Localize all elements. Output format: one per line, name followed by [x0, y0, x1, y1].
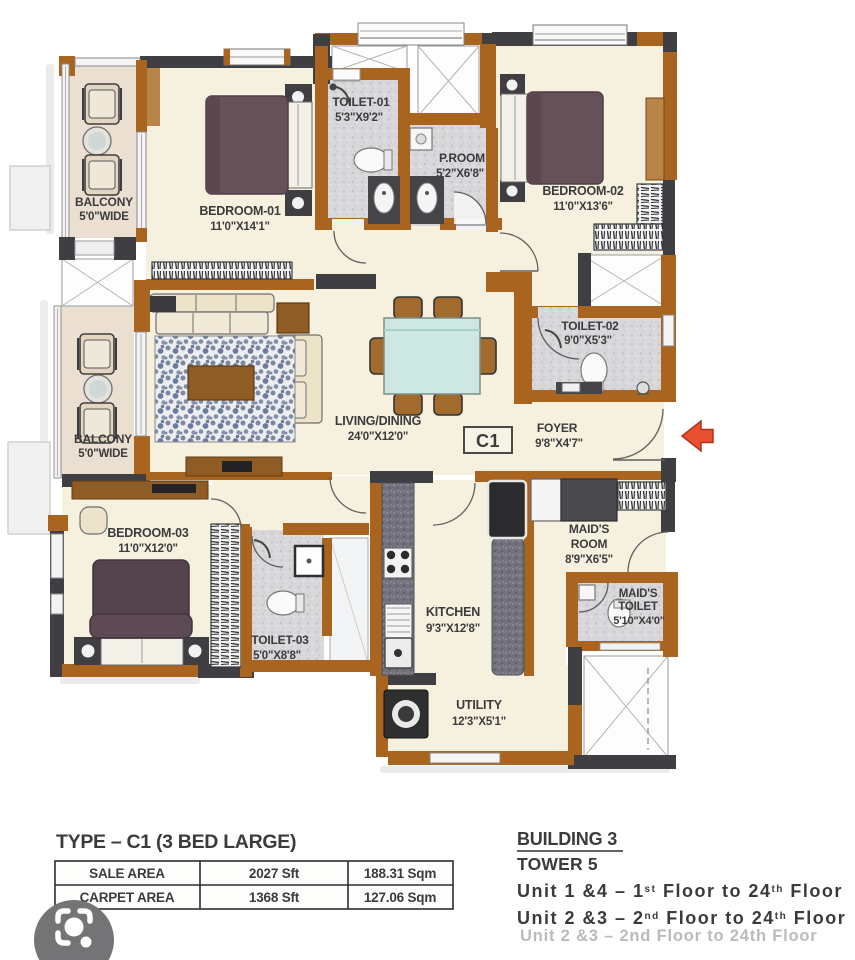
- svg-text:Unit 2 &3 – 2nd Floor to 24th: Unit 2 &3 – 2nd Floor to 24th Floor: [517, 908, 846, 928]
- svg-text:5'0"X8'8": 5'0"X8'8": [253, 650, 301, 662]
- svg-text:11'0"X13'6": 11'0"X13'6": [553, 201, 613, 213]
- svg-text:MAID'S: MAID'S: [619, 588, 658, 600]
- svg-text:TYPE – C1 (3 BED LARGE): TYPE – C1 (3 BED LARGE): [56, 831, 296, 853]
- svg-text:2027 Sft: 2027 Sft: [249, 866, 300, 881]
- svg-text:1368 Sft: 1368 Sft: [249, 890, 300, 905]
- svg-text:9'0"X5'3": 9'0"X5'3": [564, 335, 612, 347]
- svg-text:BEDROOM-01: BEDROOM-01: [199, 204, 281, 218]
- svg-text:FOYER: FOYER: [537, 421, 578, 435]
- svg-text:5'10"X4'0": 5'10"X4'0": [613, 615, 665, 627]
- svg-text:MAID'S: MAID'S: [569, 522, 610, 536]
- svg-text:Unit 1 &4 – 1st Floor to 24th: Unit 1 &4 – 1st Floor to 24th Floor: [517, 881, 843, 901]
- svg-text:UTILITY: UTILITY: [456, 698, 503, 712]
- svg-text:BALCONY: BALCONY: [74, 432, 132, 446]
- svg-text:5'3"X9'2": 5'3"X9'2": [335, 112, 383, 124]
- svg-text:9'3"X12'8": 9'3"X12'8": [426, 623, 480, 635]
- svg-text:9'8"X4'7": 9'8"X4'7": [535, 438, 583, 450]
- svg-text:TOILET-02: TOILET-02: [561, 319, 619, 333]
- svg-text:24'0"X12'0": 24'0"X12'0": [348, 431, 408, 443]
- svg-text:TOILET-01: TOILET-01: [332, 95, 390, 109]
- svg-text:P.ROOM: P.ROOM: [439, 151, 485, 165]
- svg-text:ROOM: ROOM: [571, 537, 608, 551]
- svg-text:188.31 Sqm: 188.31 Sqm: [364, 866, 436, 881]
- svg-text:127.06 Sqm: 127.06 Sqm: [364, 890, 436, 905]
- svg-text:11'0"X12'0": 11'0"X12'0": [118, 543, 178, 555]
- svg-text:SALE AREA: SALE AREA: [89, 866, 165, 881]
- svg-text:5'2"X6'8": 5'2"X6'8": [436, 168, 484, 180]
- svg-text:5'0"WIDE: 5'0"WIDE: [78, 448, 128, 460]
- svg-text:11'0"X14'1": 11'0"X14'1": [210, 221, 270, 233]
- svg-text:KITCHEN: KITCHEN: [426, 605, 480, 619]
- svg-text:12'3"X5'1": 12'3"X5'1": [452, 716, 506, 728]
- svg-text:5'0"WIDE: 5'0"WIDE: [79, 211, 129, 223]
- svg-text:8'9"X6'5": 8'9"X6'5": [565, 554, 613, 566]
- svg-text:CARPET AREA: CARPET AREA: [80, 890, 175, 905]
- svg-text:Unit 2 &3 – 2nd Floor to 24th: Unit 2 &3 – 2nd Floor to 24th Floor: [520, 927, 818, 945]
- svg-text:TOWER 5: TOWER 5: [517, 854, 598, 874]
- svg-text:LIVING/DINING: LIVING/DINING: [335, 414, 421, 428]
- svg-text:BEDROOM-03: BEDROOM-03: [107, 526, 189, 540]
- svg-text:TOILET-03: TOILET-03: [251, 633, 309, 647]
- svg-text:TOILET: TOILET: [618, 601, 658, 613]
- svg-text:BALCONY: BALCONY: [75, 195, 133, 209]
- svg-text:BUILDING 3: BUILDING 3: [517, 829, 617, 849]
- svg-text:C1: C1: [476, 431, 500, 451]
- svg-text:BEDROOM-02: BEDROOM-02: [542, 184, 624, 198]
